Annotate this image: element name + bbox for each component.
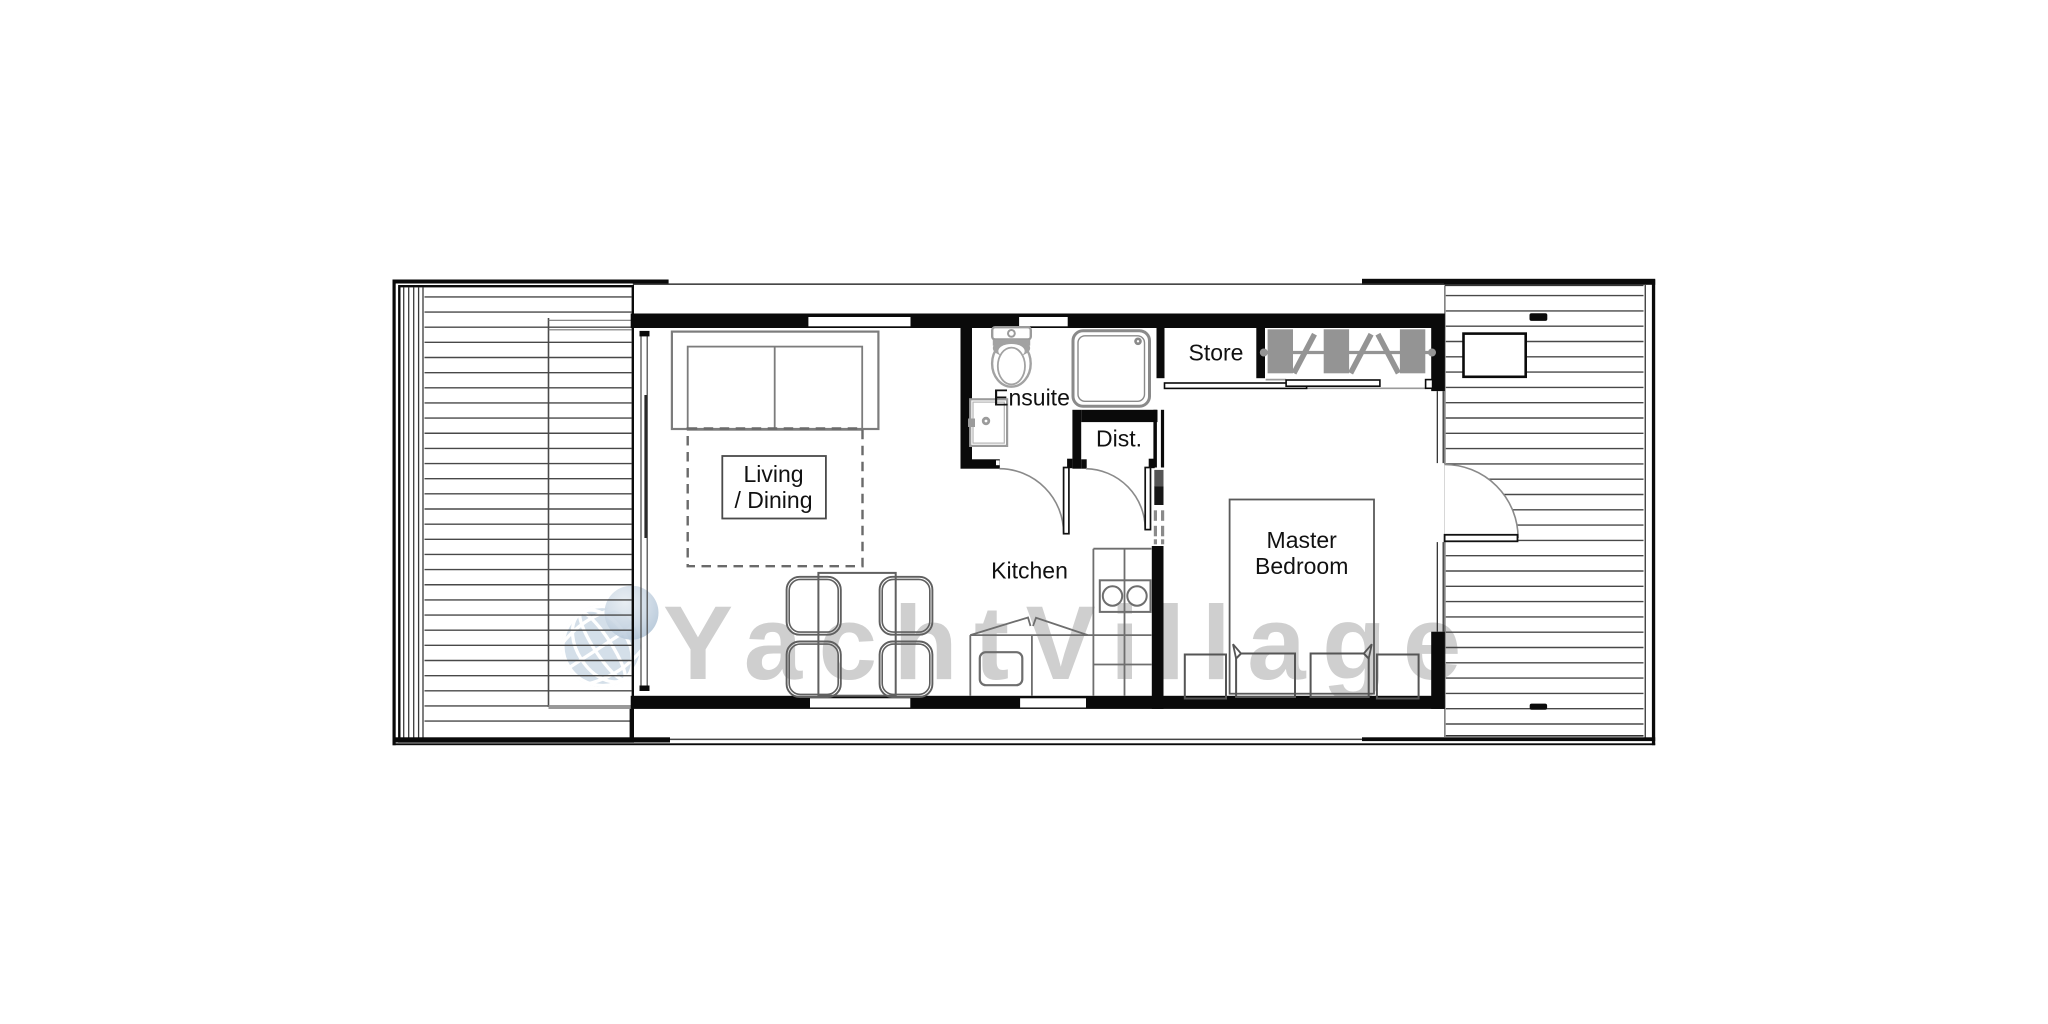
svg-text:Kitchen: Kitchen [991, 558, 1068, 584]
svg-text:Store: Store [1189, 340, 1244, 366]
svg-text:Bedroom: Bedroom [1255, 553, 1348, 579]
svg-text:YachtVillage: YachtVillage [663, 585, 1478, 702]
svg-text:Dist.: Dist. [1096, 426, 1142, 452]
svg-text:Ensuite: Ensuite [993, 384, 1070, 410]
svg-text:Living: Living [743, 461, 803, 487]
svg-text:/ Dining: / Dining [735, 487, 813, 513]
svg-text:Master: Master [1267, 527, 1338, 553]
